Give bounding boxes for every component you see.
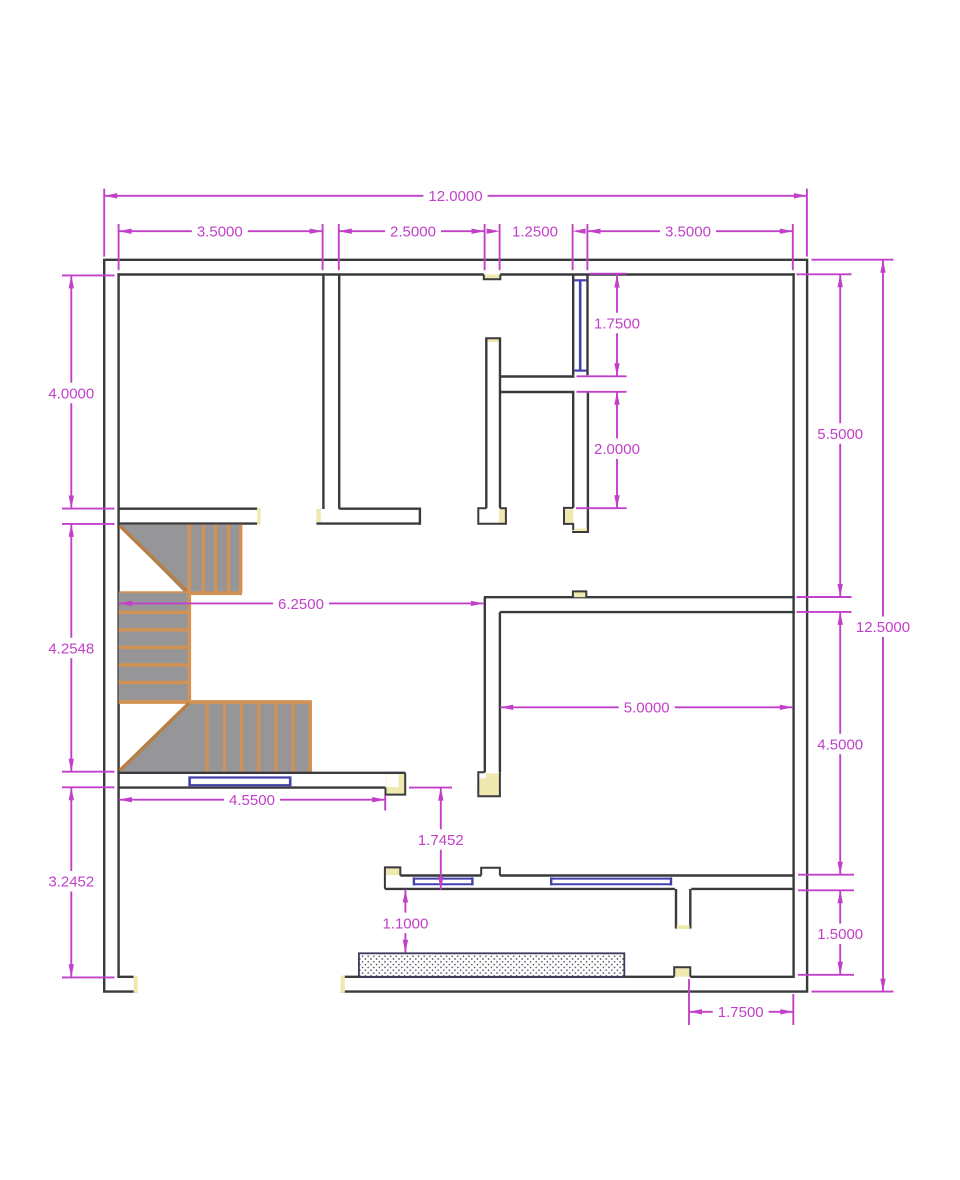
svg-text:4.5500: 4.5500: [229, 792, 275, 809]
svg-text:5.5000: 5.5000: [817, 426, 863, 443]
svg-text:3.2452: 3.2452: [48, 874, 94, 891]
svg-text:12.5000: 12.5000: [856, 619, 910, 636]
svg-text:1.2500: 1.2500: [512, 224, 558, 241]
svg-text:6.2500: 6.2500: [278, 596, 324, 613]
svg-text:1.1000: 1.1000: [382, 915, 428, 932]
svg-text:5.0000: 5.0000: [624, 700, 670, 717]
svg-text:1.7452: 1.7452: [418, 832, 464, 849]
svg-text:4.5000: 4.5000: [817, 736, 863, 753]
svg-text:1.7500: 1.7500: [718, 1004, 764, 1021]
svg-text:1.7500: 1.7500: [594, 315, 640, 332]
svg-text:12.0000: 12.0000: [428, 188, 482, 205]
svg-text:3.5000: 3.5000: [197, 224, 243, 241]
svg-text:2.5000: 2.5000: [390, 224, 436, 241]
svg-text:1.5000: 1.5000: [817, 926, 863, 943]
svg-text:4.2548: 4.2548: [48, 640, 94, 657]
svg-text:2.0000: 2.0000: [594, 441, 640, 458]
svg-text:4.0000: 4.0000: [48, 385, 94, 402]
svg-text:3.5000: 3.5000: [665, 224, 711, 241]
